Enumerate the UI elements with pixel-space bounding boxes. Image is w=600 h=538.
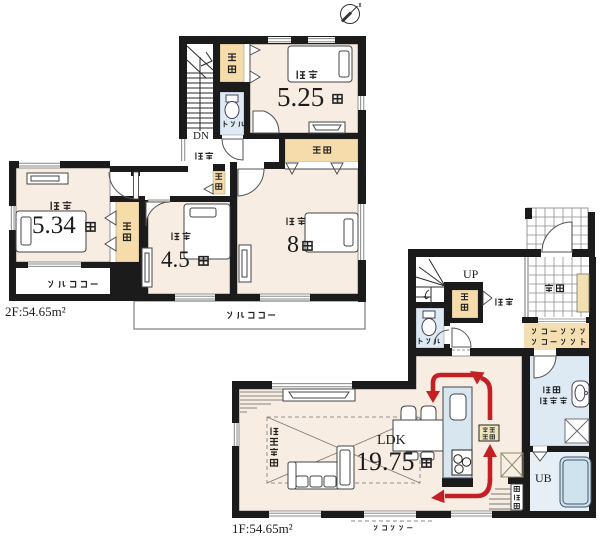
svg-text:UB: UB bbox=[535, 471, 552, 485]
svg-text:UP: UP bbox=[463, 267, 479, 281]
svg-text:5.25: 5.25 bbox=[277, 82, 324, 112]
svg-text:1F:54.65m²: 1F:54.65m² bbox=[232, 521, 293, 536]
svg-text:5.34: 5.34 bbox=[32, 212, 76, 239]
svg-text:19.75: 19.75 bbox=[356, 447, 415, 476]
svg-text:DN: DN bbox=[193, 130, 209, 142]
svg-text:4.5: 4.5 bbox=[161, 247, 190, 272]
svg-text:2F:54.65m²: 2F:54.65m² bbox=[5, 304, 66, 319]
svg-text:LDK: LDK bbox=[377, 433, 406, 448]
svg-text:8: 8 bbox=[287, 232, 299, 258]
